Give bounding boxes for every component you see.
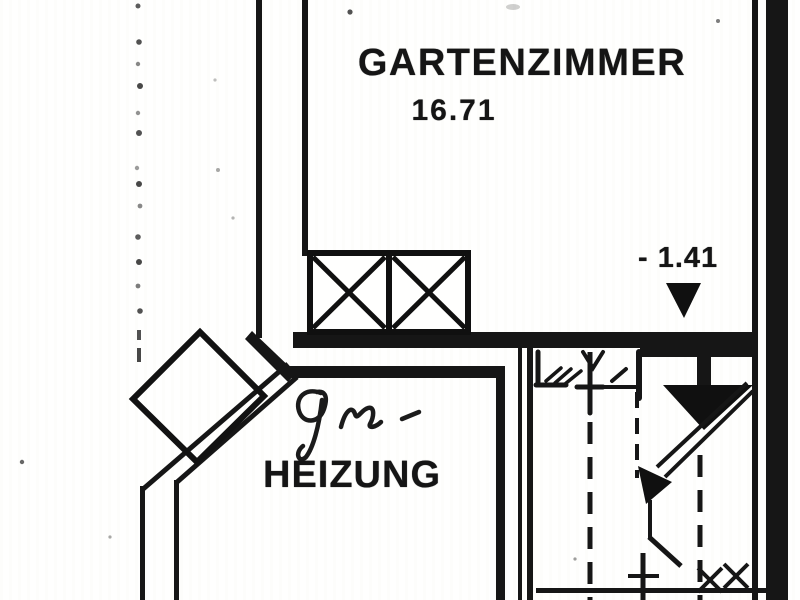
handwritten-annotation: Gas- [298, 391, 419, 459]
wall-heizung-left-inner [174, 480, 179, 600]
wall-stairwell-left-b [527, 348, 533, 600]
stair-direction-arrow-icon [638, 348, 753, 566]
floor-plan: Gas- [0, 0, 800, 600]
floor-plan-drawing: Gas- [0, 0, 800, 600]
wall-stairwell-left-a [518, 348, 522, 600]
wall-stair-bottom-line [536, 588, 768, 593]
shaft-symbol [310, 253, 468, 332]
elevation-marker-icon [666, 283, 701, 318]
wall-gartenzimmer-left-outer [256, 0, 262, 338]
room-label-gartenzimmer: GARTENZIMMER [340, 42, 704, 85]
wall-right-inner-line [752, 0, 758, 600]
elevation-value: - 1.41 [638, 242, 718, 275]
room-label-heizung: HEIZUNG [263, 454, 441, 497]
room-area-gartenzimmer: 16.71 [354, 94, 554, 128]
wall-heizung-right [496, 366, 505, 600]
wall-right-outer-bar [766, 0, 788, 600]
wall-heizung-top [284, 366, 502, 378]
wall-heizung-left-outer [140, 486, 145, 600]
stair-x-marks [698, 564, 748, 592]
wall-gartenzimmer-left-inner [302, 0, 308, 256]
